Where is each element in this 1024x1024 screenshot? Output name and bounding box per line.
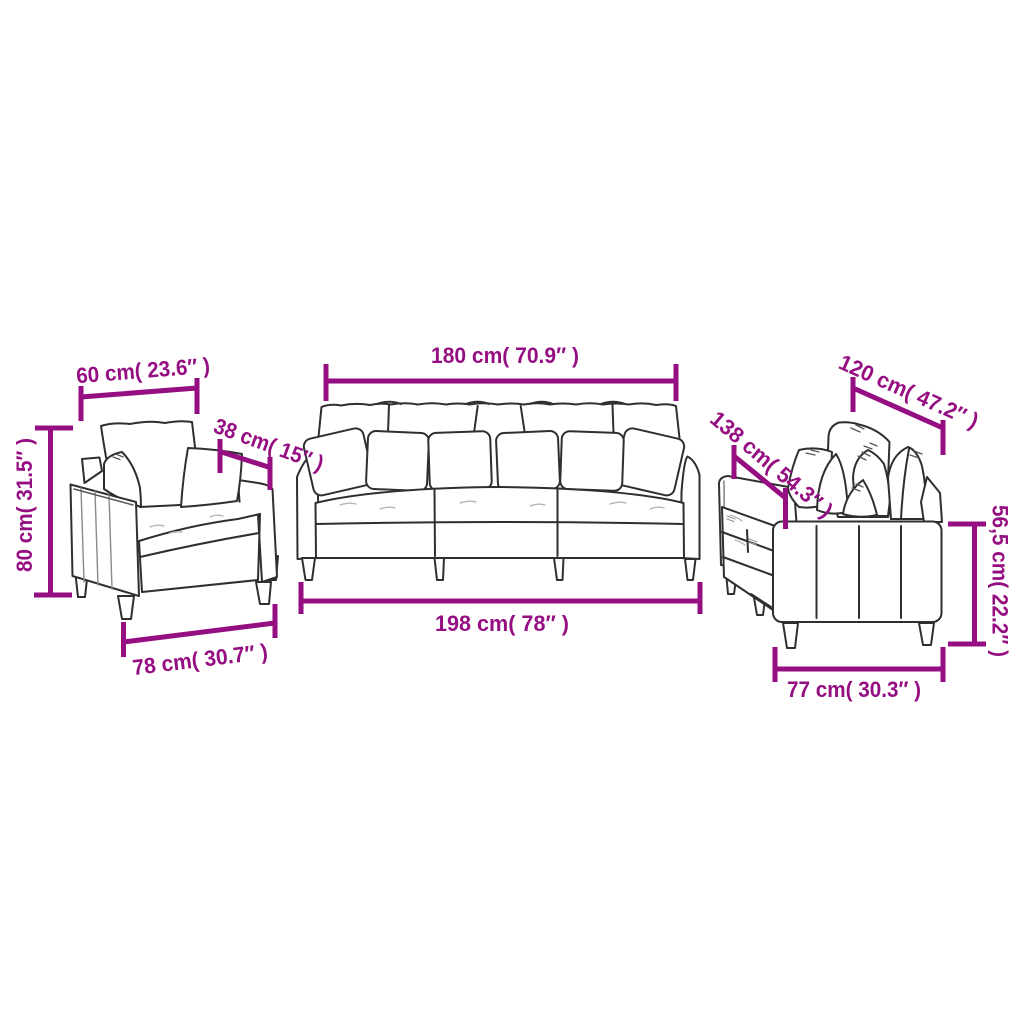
- svg-text:180 cm( 70.9″ ): 180 cm( 70.9″ ): [431, 343, 579, 368]
- svg-text:77 cm( 30.3″ ): 77 cm( 30.3″ ): [787, 677, 921, 702]
- svg-text:80 cm( 31.5″ ): 80 cm( 31.5″ ): [12, 438, 37, 572]
- svg-text:56,5 cm( 22.2″ ): 56,5 cm( 22.2″ ): [988, 505, 1013, 657]
- svg-text:198 cm( 78″ ): 198 cm( 78″ ): [435, 611, 569, 636]
